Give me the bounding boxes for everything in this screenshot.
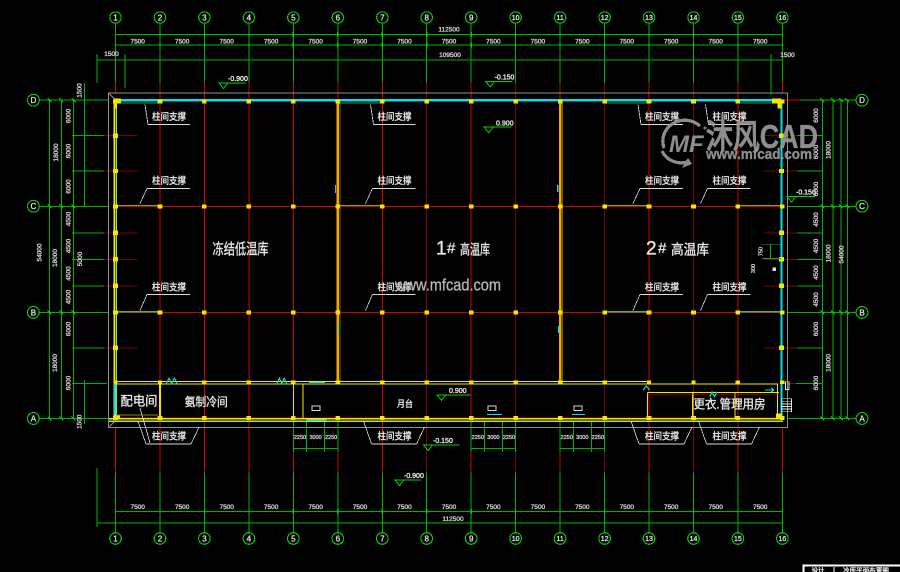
svg-text:5: 5: [291, 13, 296, 22]
svg-text:16: 16: [779, 536, 787, 543]
svg-text:7500: 7500: [264, 504, 279, 511]
svg-text:12: 12: [601, 536, 609, 543]
svg-text:7500: 7500: [708, 504, 723, 511]
svg-text:-0.150: -0.150: [495, 75, 515, 82]
svg-text:柱间支撑: 柱间支撑: [713, 175, 747, 187]
svg-text:7500: 7500: [620, 504, 635, 511]
svg-text:柱间支撑: 柱间支撑: [713, 431, 747, 443]
svg-text:柱间支撑: 柱间支撑: [152, 282, 186, 294]
svg-text:2250: 2250: [592, 435, 604, 441]
svg-text:C: C: [31, 202, 37, 211]
svg-text:7500: 7500: [353, 504, 368, 511]
svg-text:www.mfcad.com: www.mfcad.com: [705, 146, 812, 163]
svg-text:4500: 4500: [813, 292, 820, 307]
svg-text:A: A: [859, 414, 865, 423]
svg-text:13: 13: [645, 536, 653, 543]
svg-text:6000: 6000: [66, 375, 73, 390]
svg-text:7500: 7500: [531, 38, 546, 45]
svg-text:10: 10: [512, 15, 520, 22]
svg-text:3000: 3000: [309, 435, 321, 441]
svg-text:7500: 7500: [708, 38, 723, 45]
svg-text:1500: 1500: [77, 83, 84, 98]
svg-text:#: #: [447, 240, 456, 257]
svg-text:4500: 4500: [813, 238, 820, 253]
svg-text:16: 16: [779, 15, 787, 22]
svg-text:6000: 6000: [66, 143, 73, 158]
svg-text:B: B: [31, 308, 36, 317]
svg-text:5000: 5000: [77, 251, 84, 266]
svg-text:7500: 7500: [442, 38, 457, 45]
svg-text:4500: 4500: [66, 238, 73, 253]
svg-text:18000: 18000: [826, 244, 833, 262]
svg-text:54000: 54000: [37, 243, 44, 261]
svg-text:5: 5: [291, 534, 296, 543]
svg-text:#: #: [658, 240, 667, 257]
svg-text:7500: 7500: [531, 504, 546, 511]
svg-text:www.mfcad.com: www.mfcad.com: [394, 276, 501, 295]
svg-text:柱间支撑: 柱间支撑: [152, 431, 186, 443]
svg-text:1500: 1500: [77, 414, 84, 429]
svg-text:0.900: 0.900: [496, 120, 514, 127]
svg-text:C: C: [859, 202, 865, 211]
svg-text:7500: 7500: [575, 38, 590, 45]
svg-text:12: 12: [601, 15, 609, 22]
svg-text:18000: 18000: [826, 141, 833, 159]
svg-text:7: 7: [380, 534, 385, 543]
svg-text:13: 13: [645, 15, 653, 22]
svg-text:月台: 月台: [397, 398, 413, 409]
svg-text:4500: 4500: [813, 265, 820, 280]
svg-text:7500: 7500: [219, 38, 234, 45]
svg-text:D: D: [859, 96, 865, 105]
svg-text:高温库: 高温库: [460, 242, 490, 258]
svg-text:6000: 6000: [813, 181, 820, 196]
svg-text:7500: 7500: [664, 38, 679, 45]
svg-text:15: 15: [734, 536, 742, 543]
svg-text:112500: 112500: [438, 27, 460, 34]
svg-text:7500: 7500: [175, 504, 190, 511]
svg-text:8: 8: [424, 534, 429, 543]
svg-text:8: 8: [424, 13, 429, 22]
svg-text:6: 6: [336, 534, 341, 543]
svg-text:6000: 6000: [66, 179, 73, 194]
svg-text:A: A: [31, 414, 37, 423]
svg-text:3000: 3000: [487, 435, 499, 441]
svg-text:7500: 7500: [175, 38, 190, 45]
svg-text:2: 2: [158, 13, 163, 22]
svg-text:2250: 2250: [472, 435, 484, 441]
svg-text:7500: 7500: [753, 504, 768, 511]
svg-text:1: 1: [113, 534, 118, 543]
svg-text:-0.900: -0.900: [404, 473, 424, 480]
svg-text:柱间支撑: 柱间支撑: [378, 175, 412, 187]
svg-text:18000: 18000: [53, 143, 60, 161]
svg-text:更衣.管理用房: 更衣.管理用房: [694, 397, 766, 412]
svg-text:2: 2: [646, 239, 657, 260]
svg-text:54000: 54000: [839, 245, 846, 263]
svg-text:6000: 6000: [66, 321, 73, 336]
svg-text:B: B: [859, 308, 864, 317]
svg-text:7500: 7500: [664, 504, 679, 511]
svg-text:14: 14: [690, 536, 698, 543]
svg-text:配电间: 配电间: [121, 394, 158, 409]
svg-text:6000: 6000: [66, 108, 73, 123]
svg-text:10: 10: [512, 536, 520, 543]
svg-text:柱间支撑: 柱间支撑: [645, 175, 679, 187]
svg-text:6000: 6000: [813, 321, 820, 336]
svg-text:18000: 18000: [826, 354, 833, 372]
svg-text:7500: 7500: [397, 38, 412, 45]
svg-text:2250: 2250: [561, 435, 573, 441]
svg-text:7500: 7500: [486, 38, 501, 45]
svg-text:300: 300: [751, 264, 757, 273]
svg-text:15: 15: [734, 15, 742, 22]
svg-text:1: 1: [113, 13, 118, 22]
svg-text:4500: 4500: [66, 266, 73, 281]
svg-text:7500: 7500: [353, 38, 368, 45]
svg-text:柱间支撑: 柱间支撑: [152, 111, 186, 123]
svg-text:1: 1: [436, 239, 447, 260]
svg-text:18000: 18000: [52, 354, 59, 372]
svg-text:7500: 7500: [486, 504, 501, 511]
svg-text:7500: 7500: [442, 504, 457, 511]
svg-text:2: 2: [158, 534, 163, 543]
svg-text:3: 3: [202, 13, 207, 22]
svg-text:-0.150: -0.150: [433, 438, 453, 445]
svg-text:7500: 7500: [397, 504, 412, 511]
svg-text:2250: 2250: [325, 435, 337, 441]
svg-text:11: 11: [556, 15, 563, 22]
svg-text:D: D: [31, 96, 37, 105]
svg-text:109500: 109500: [439, 52, 461, 59]
svg-text:0.900: 0.900: [449, 388, 467, 395]
svg-text:7500: 7500: [620, 38, 635, 45]
svg-text:柱间支撑: 柱间支撑: [378, 111, 412, 123]
svg-text:-0.900: -0.900: [228, 76, 248, 83]
svg-text:柱间支撑: 柱间支撑: [152, 175, 186, 187]
svg-text:柱间支撑: 柱间支撑: [713, 282, 747, 294]
svg-text:7500: 7500: [264, 38, 279, 45]
svg-text:112500: 112500: [442, 516, 464, 523]
svg-text:6: 6: [336, 13, 341, 22]
svg-text:1500: 1500: [104, 51, 119, 58]
svg-text:7: 7: [380, 13, 385, 22]
svg-text:7500: 7500: [308, 504, 323, 511]
svg-text:18000: 18000: [52, 249, 59, 267]
svg-text:4: 4: [247, 13, 252, 22]
svg-text:4500: 4500: [66, 289, 73, 304]
svg-text:3000: 3000: [576, 435, 588, 441]
svg-text:冻结低温库: 冻结低温库: [213, 240, 269, 258]
svg-text:7500: 7500: [308, 38, 323, 45]
svg-text:9: 9: [469, 534, 474, 543]
svg-text:柱间支撑: 柱间支撑: [645, 282, 679, 294]
svg-text:柱间支撑: 柱间支撑: [645, 431, 679, 443]
svg-text:14: 14: [690, 15, 698, 22]
svg-text:7500: 7500: [753, 38, 768, 45]
svg-text:柱间支撑: 柱间支撑: [378, 431, 412, 443]
svg-text:11: 11: [556, 536, 563, 543]
svg-text:4500: 4500: [66, 211, 73, 226]
svg-text:高温库: 高温库: [671, 242, 709, 258]
svg-text:4500: 4500: [813, 212, 820, 227]
svg-text:6000: 6000: [813, 375, 820, 390]
svg-text:3: 3: [202, 534, 207, 543]
svg-text:7500: 7500: [130, 504, 145, 511]
svg-text:4: 4: [247, 534, 252, 543]
svg-text:7500: 7500: [219, 504, 234, 511]
svg-text:2250: 2250: [294, 435, 306, 441]
svg-text:MF: MF: [669, 131, 705, 158]
svg-text:7500: 7500: [575, 504, 590, 511]
svg-text:750: 750: [759, 247, 765, 256]
svg-text:7500: 7500: [130, 38, 145, 45]
svg-text:2250: 2250: [503, 435, 515, 441]
svg-text:1500: 1500: [780, 52, 795, 59]
svg-text:9: 9: [469, 13, 474, 22]
svg-text:氨制冷间: 氨制冷间: [185, 395, 228, 409]
